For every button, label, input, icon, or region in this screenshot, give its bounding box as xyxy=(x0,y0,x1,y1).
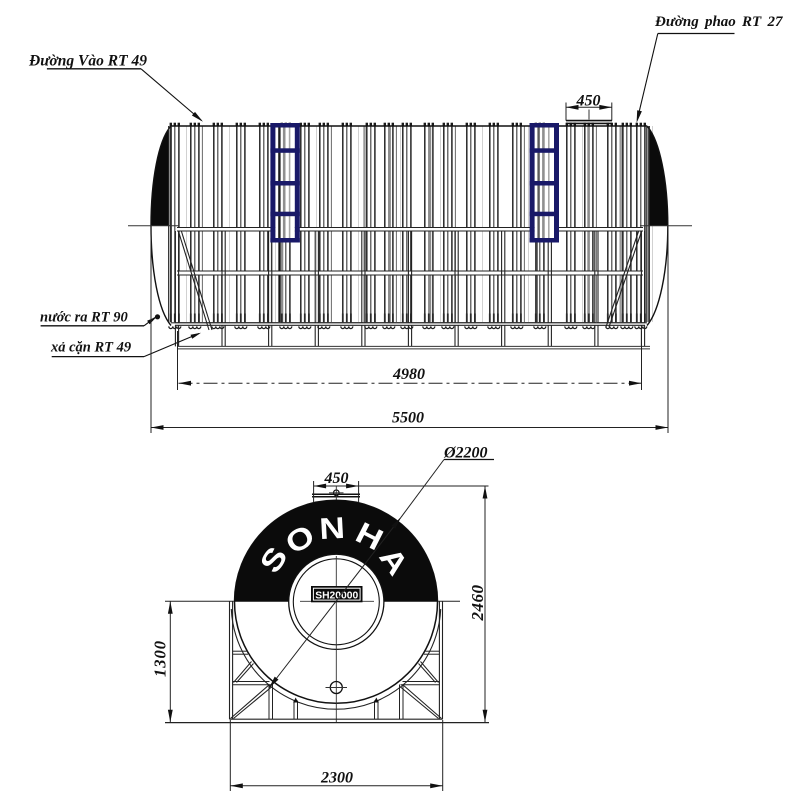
svg-text:nước ra RT 90: nước ra RT 90 xyxy=(40,309,128,325)
svg-text:2460: 2460 xyxy=(468,585,487,622)
svg-text:2300: 2300 xyxy=(320,770,353,787)
svg-text:450: 450 xyxy=(576,93,601,110)
svg-text:Đường phao RT 27: Đường phao RT 27 xyxy=(654,14,783,30)
svg-text:N: N xyxy=(318,510,345,545)
svg-text:450: 450 xyxy=(324,470,349,487)
svg-text:xả cặn RT 49: xả cặn RT 49 xyxy=(50,340,131,356)
svg-text:4980: 4980 xyxy=(392,366,425,383)
svg-text:5500: 5500 xyxy=(392,410,424,427)
svg-text:Đường Vào RT 49: Đường Vào RT 49 xyxy=(28,53,147,70)
svg-text:1300: 1300 xyxy=(151,640,170,677)
